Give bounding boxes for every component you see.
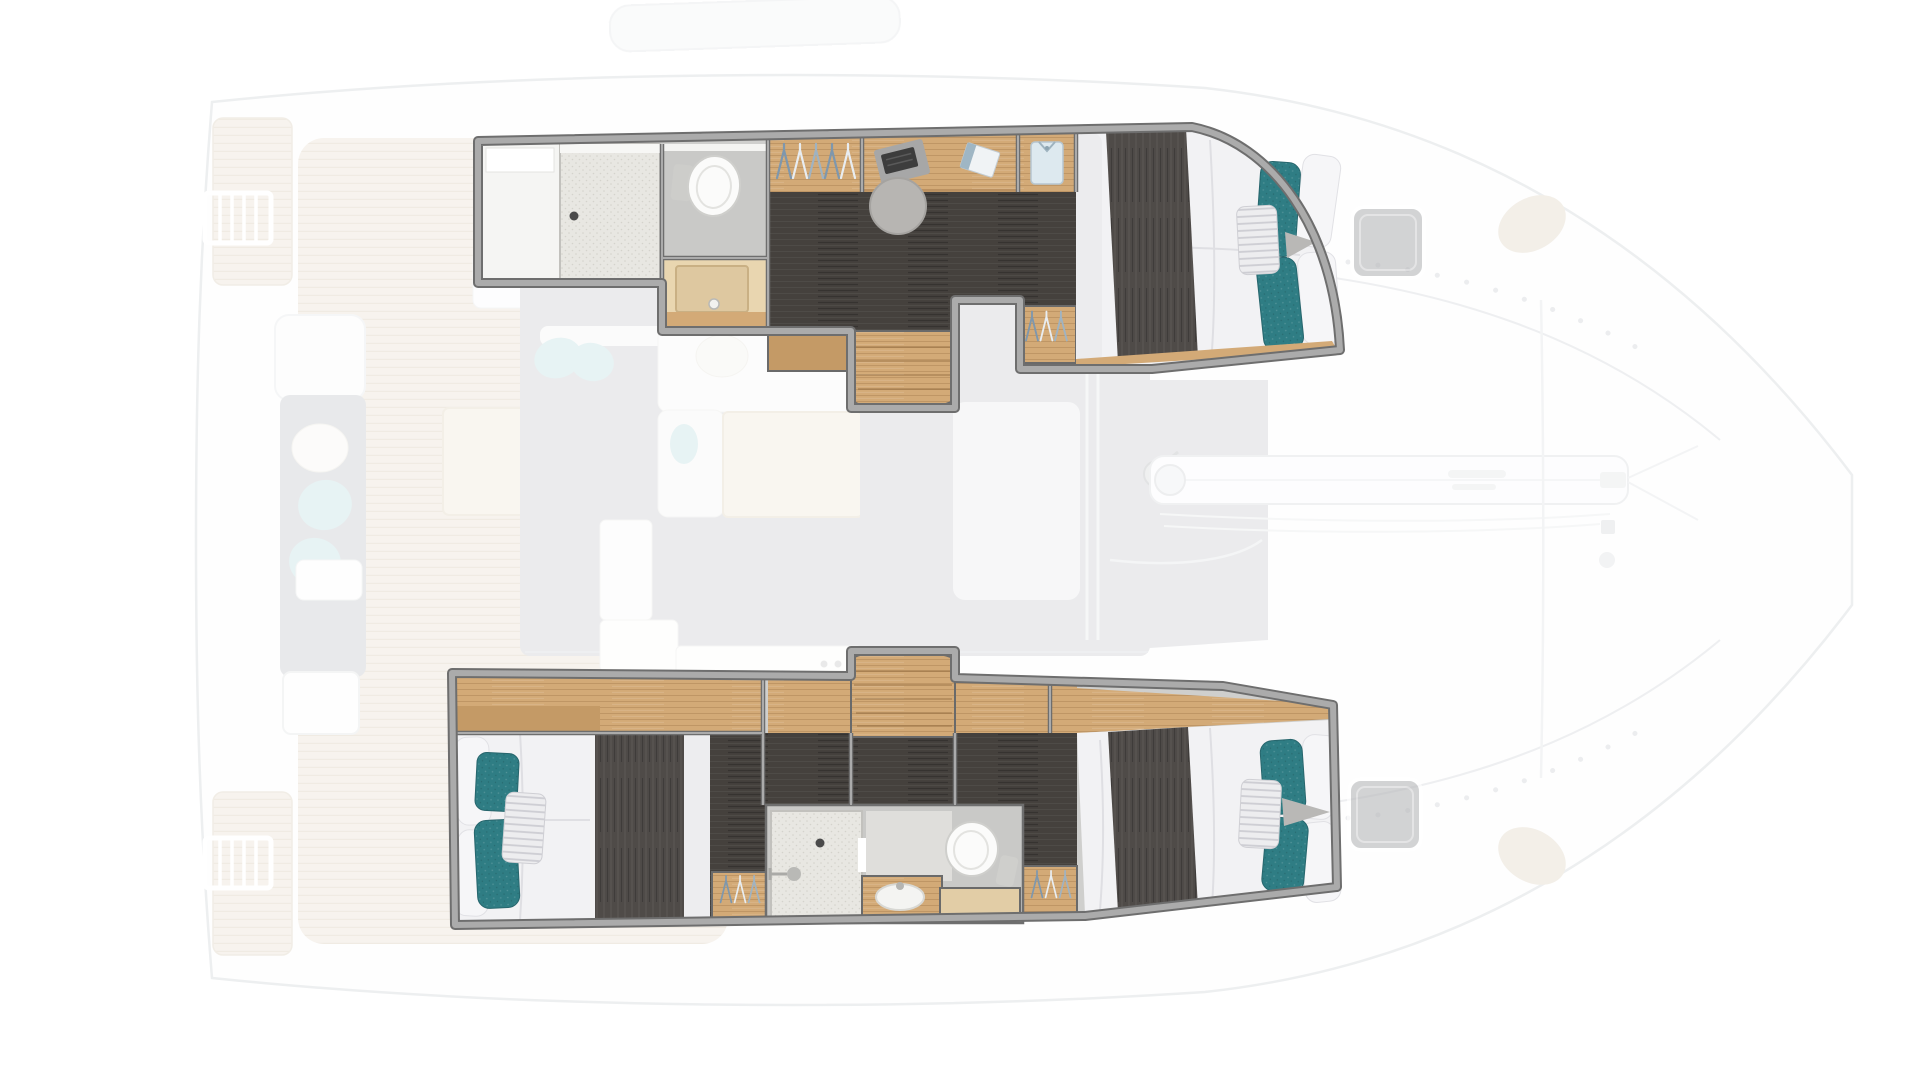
pillow-striped [1238, 779, 1282, 849]
shower-door [858, 838, 867, 872]
shower-drain-icon [816, 839, 825, 848]
swim-platform-starboard [205, 792, 292, 955]
berth-runner [1108, 727, 1198, 912]
desk-chair [870, 178, 926, 234]
sink-tap-icon [896, 882, 904, 890]
storage-shelf [955, 678, 1077, 733]
side-shelf [768, 331, 851, 371]
companionway-stairs [851, 331, 955, 409]
locker-shelf [486, 148, 554, 172]
hanging-locker-small [1023, 866, 1077, 917]
pillow-striped [1236, 205, 1280, 275]
berth-runner [1106, 128, 1198, 363]
sink-tap-icon [709, 299, 719, 309]
storage-shelf [768, 678, 851, 733]
bathroom [766, 805, 1023, 923]
swim-platform-port [205, 118, 292, 285]
shower [770, 811, 862, 919]
double-berth-aft [454, 733, 710, 920]
berth-bolster [1076, 133, 1102, 364]
berth-runner [595, 733, 684, 920]
vanity-sink [662, 258, 768, 331]
companionway-stairs [851, 651, 955, 737]
saloon-table [723, 412, 862, 517]
storage-shelf-lower [457, 706, 600, 731]
boom-icon [609, 0, 900, 52]
shower [560, 144, 660, 280]
shower-drain-icon [570, 212, 579, 221]
shirt-shelf [1018, 130, 1076, 192]
toilet-room [662, 144, 768, 258]
floorplan-canvas: Catamaran interior floor plan, top-down … [0, 0, 1920, 1080]
hanging-locker [770, 134, 862, 192]
starboard-hull-cabin [452, 651, 1342, 925]
cockpit-sofa [275, 315, 366, 677]
hanging-locker-small [712, 872, 766, 920]
beam-fitting-icon [1155, 465, 1185, 495]
hanging-locker-small [1018, 306, 1076, 363]
folded-shirt-icon [1031, 142, 1063, 184]
cushion-teal [670, 424, 698, 464]
vanity-sink [862, 811, 952, 920]
catamaran-floorplan-page: Catamaran interior floor plan, top-down … [0, 0, 1920, 1080]
cushion-white [696, 335, 748, 377]
galley-sink-tap-icon [821, 661, 828, 668]
cushion-white [292, 424, 348, 472]
double-berth-fwd [1077, 720, 1342, 914]
pillow-striped [502, 792, 547, 865]
